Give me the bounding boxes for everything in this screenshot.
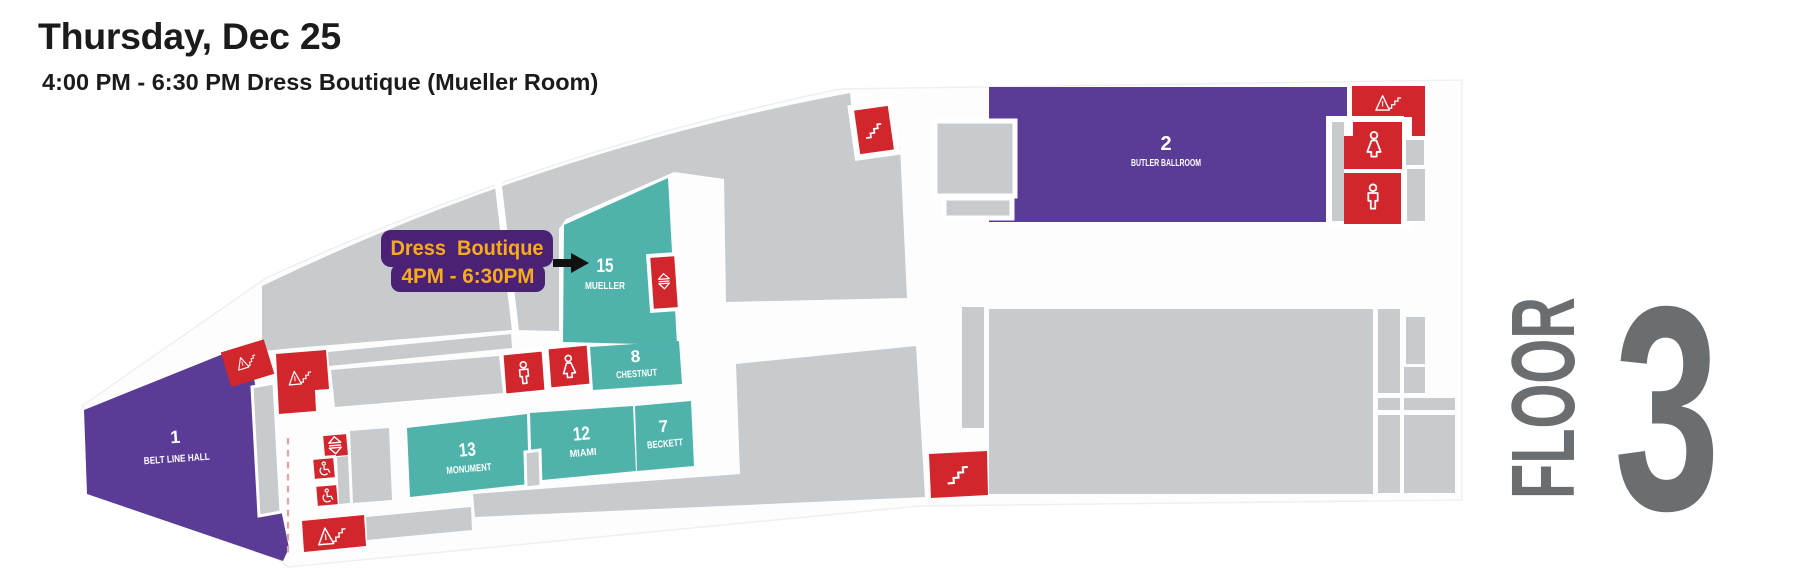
- svg-text:Dress Boutique: Dress Boutique: [391, 237, 544, 260]
- svg-text:FLOOR: FLOOR: [1494, 297, 1594, 499]
- svg-text:1: 1: [170, 427, 181, 448]
- svg-text:7: 7: [658, 417, 669, 437]
- svg-text:8: 8: [630, 347, 641, 367]
- svg-text:2: 2: [1160, 133, 1171, 155]
- svg-text:12: 12: [572, 423, 591, 445]
- svg-text:MUELLER: MUELLER: [585, 281, 626, 292]
- svg-text:3: 3: [1614, 246, 1720, 570]
- svg-text:15: 15: [597, 256, 614, 277]
- svg-text:13: 13: [458, 439, 477, 461]
- svg-text:4PM - 6:30PM: 4PM - 6:30PM: [402, 265, 535, 288]
- svg-text:BUTLER BALLROOM: BUTLER BALLROOM: [1131, 157, 1201, 169]
